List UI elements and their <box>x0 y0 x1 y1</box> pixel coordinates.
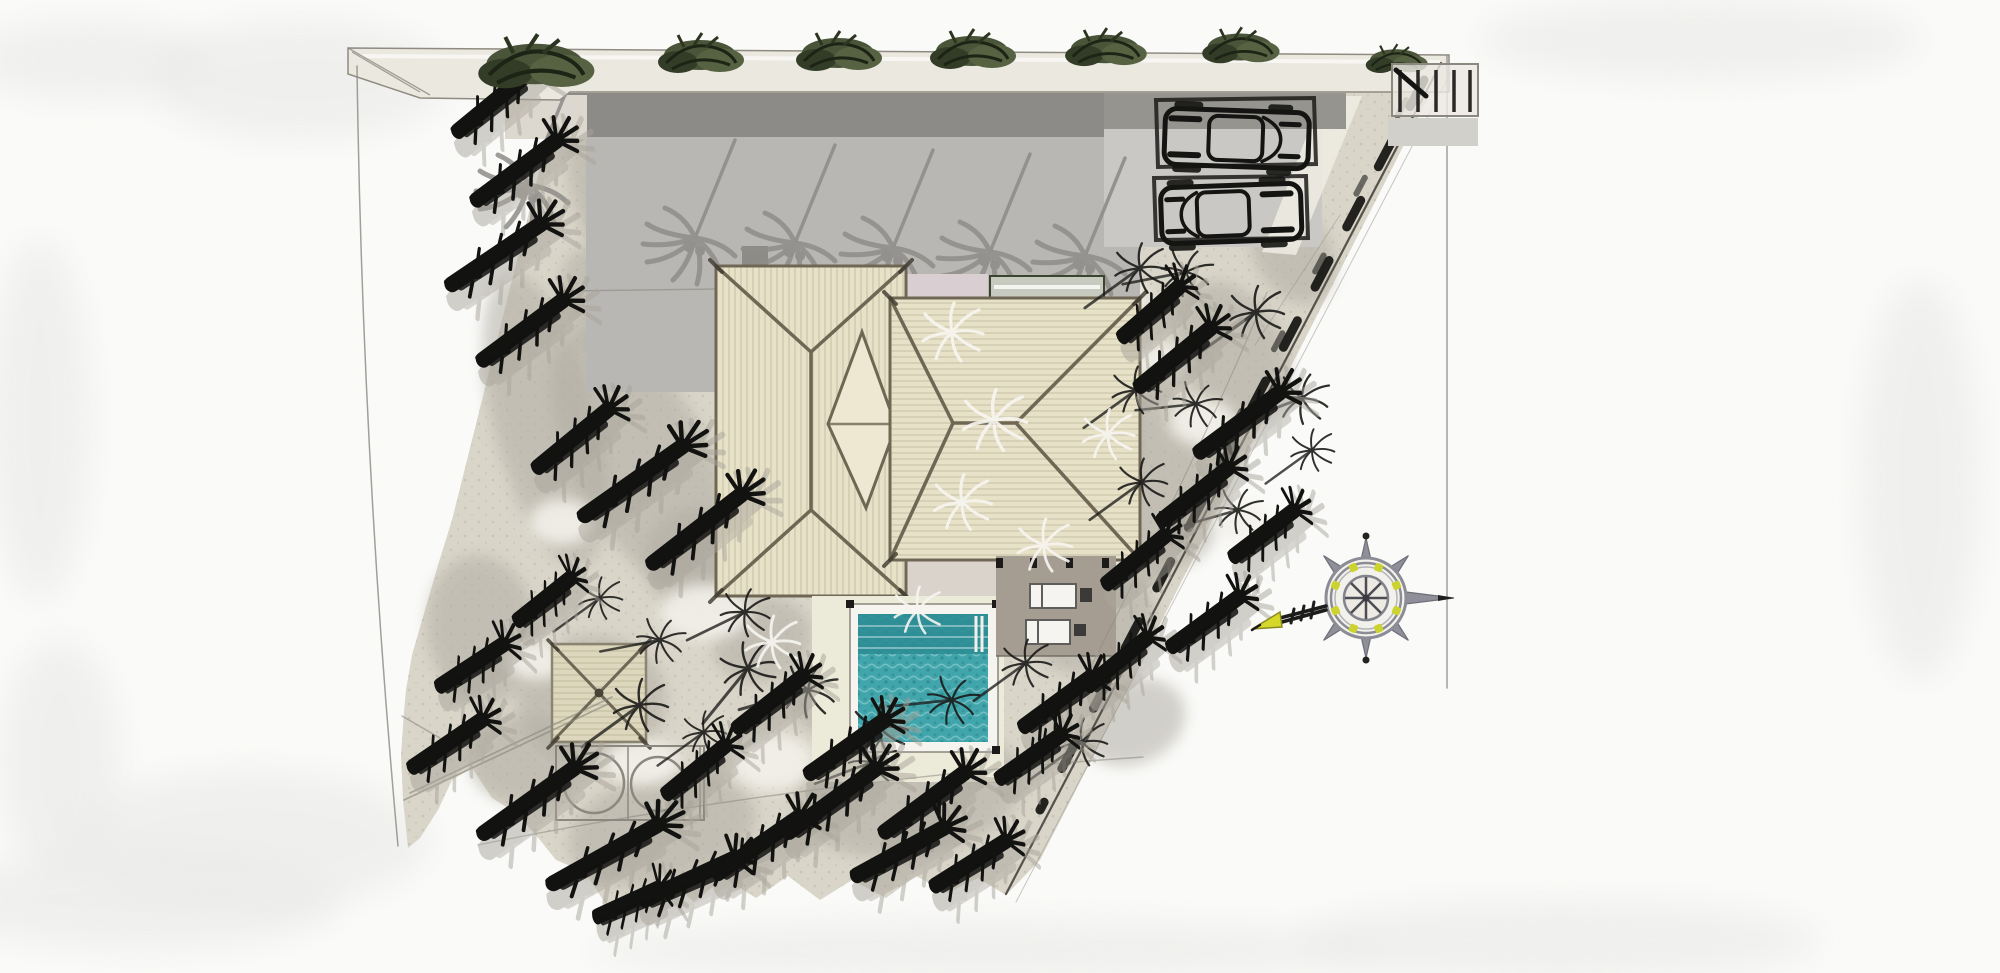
compass-north-tip <box>1363 533 1370 540</box>
pergola-slab <box>1388 118 1478 146</box>
pavilion-finial <box>595 689 604 698</box>
compass-south-tip <box>1363 657 1370 664</box>
paper-wash <box>1860 280 1980 680</box>
street-tree-foliage-icon <box>930 29 1016 69</box>
left-boundary-line <box>357 66 398 846</box>
entry-pergola-structure <box>1388 64 1478 146</box>
street-tree-foliage-icon <box>478 34 594 88</box>
compass-east-tip <box>1438 595 1454 601</box>
site-plan-canvas <box>0 0 2000 973</box>
paper-wash <box>590 920 1390 973</box>
street-tree-foliage-icon <box>658 33 744 73</box>
paper-wash <box>1300 900 1820 973</box>
house <box>710 260 1146 602</box>
terrace <box>996 556 1116 656</box>
street-tree-foliage-icon <box>1202 27 1279 63</box>
street-wall-shadow <box>568 93 1104 137</box>
paper-wash <box>1480 0 1920 80</box>
paper-wash <box>0 240 90 600</box>
street-tree-foliage-icon <box>1065 28 1147 66</box>
site-plan-sketch <box>0 0 2000 973</box>
palm-star-icon <box>1266 429 1335 483</box>
roof-pergola-strip <box>990 276 1104 298</box>
paper-wash <box>70 770 430 910</box>
street-tree-foliage-icon <box>796 31 882 71</box>
compass-center <box>1363 595 1370 602</box>
